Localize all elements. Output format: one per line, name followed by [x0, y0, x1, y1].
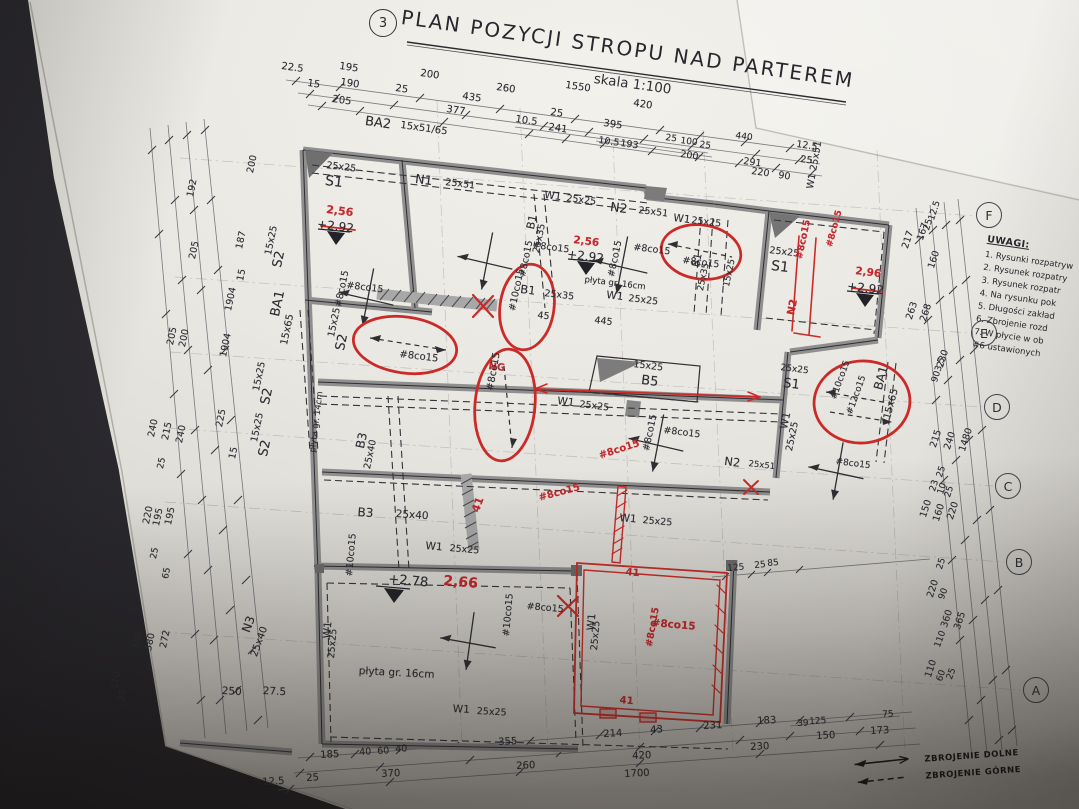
fold-crease [737, 0, 1079, 200]
label: 25x25 [642, 516, 673, 528]
grid-bubble-D: D [984, 394, 1010, 420]
label: W1 [544, 190, 562, 203]
hatched-walls [305, 150, 800, 576]
label: 25x25 [449, 544, 480, 556]
label: 193 [620, 139, 639, 151]
label: W1 [557, 396, 575, 409]
drawing-number-bubble: 3 [369, 9, 397, 37]
label: 150 [816, 731, 836, 742]
label: N2 [724, 456, 741, 469]
label: 200 [680, 150, 699, 162]
label: 27.5 [262, 686, 286, 698]
label: 2,56 [326, 204, 354, 218]
label: 370 [381, 769, 401, 780]
label: S1 [324, 174, 343, 190]
label: 220 [751, 167, 770, 179]
grid-bubble-A: A [1023, 677, 1049, 703]
label: W1 [425, 541, 443, 553]
label: +2.78 [388, 573, 429, 589]
label: B3 [357, 506, 374, 519]
label: 25x25 [477, 707, 507, 718]
label: 355 [498, 737, 518, 748]
label: S2 [259, 387, 275, 406]
label: 1700 [624, 769, 650, 780]
label: 15 [307, 79, 321, 91]
label: 25 [754, 561, 766, 571]
label: 15 [228, 446, 240, 460]
label: 25x25 [590, 620, 602, 651]
label: N1 [414, 173, 433, 188]
label: S1 [770, 259, 789, 275]
label: W1 [619, 513, 637, 525]
label: 25 [306, 773, 319, 784]
label: 2,96 [855, 266, 882, 280]
label: 25x40 [395, 509, 429, 522]
label: W1 [673, 213, 691, 226]
label: 40 [395, 744, 408, 754]
label: S2 [334, 333, 350, 352]
label: 60 [377, 746, 390, 756]
label: 25 [699, 141, 712, 152]
grid-bubble-B: B [1006, 549, 1032, 575]
plan-linework [0, 0, 1079, 809]
paper-edge [30, 2, 352, 809]
label: B5 [640, 374, 659, 389]
label: 125 [727, 564, 745, 574]
label: 15 [236, 268, 248, 282]
notes-block: UWAGI: 1. Rysunki rozpatryw2. Rysunek ro… [971, 234, 1079, 374]
dashed-arrow-icon [849, 771, 916, 788]
label: 10.5 [598, 136, 620, 148]
legend-label-top: ZBROJENIE GÓRNE [925, 764, 1021, 781]
label: W1 [606, 290, 624, 303]
label: 2,66 [443, 574, 479, 591]
label: 12.5 [262, 777, 285, 788]
label: BA2 [364, 115, 392, 132]
label: S2 [271, 250, 287, 269]
label: 40 [359, 747, 372, 757]
label: 41 [625, 568, 640, 579]
label: 90 [778, 171, 791, 182]
label: S2 [257, 439, 273, 458]
solid-arrow-icon [848, 754, 915, 771]
label: 25 [665, 134, 678, 145]
label: W1 [452, 704, 470, 715]
label: 2,56 [573, 235, 600, 249]
grid-bubble-C: C [995, 473, 1021, 499]
label: 420 [632, 751, 652, 762]
label: 41 [619, 696, 634, 707]
label: 43 [650, 725, 663, 736]
label: 125 [809, 717, 827, 727]
label: 75 [882, 710, 894, 720]
label: 231 [703, 721, 723, 732]
label: 185 [320, 750, 340, 761]
label: 445 [594, 316, 613, 328]
grid-bubble-F: F [976, 202, 1002, 228]
label: 25 [395, 84, 409, 96]
label: 214 [603, 729, 623, 740]
label: 250 [221, 686, 242, 698]
label: 230 [750, 742, 770, 753]
label: 85 [767, 559, 779, 569]
photographed-structural-drawing: 3 PLAN POZYCJI STROPU NAD PARTEREM skala… [0, 0, 1079, 809]
label: 25x25 [327, 628, 339, 659]
label: N2 [609, 201, 628, 216]
label: 39 [797, 719, 809, 729]
label: 183 [757, 716, 777, 727]
label: S1 [782, 377, 800, 392]
label: 25 [550, 108, 564, 120]
label: 173 [870, 726, 890, 737]
label: 45 [537, 311, 550, 322]
label: 260 [516, 761, 536, 772]
